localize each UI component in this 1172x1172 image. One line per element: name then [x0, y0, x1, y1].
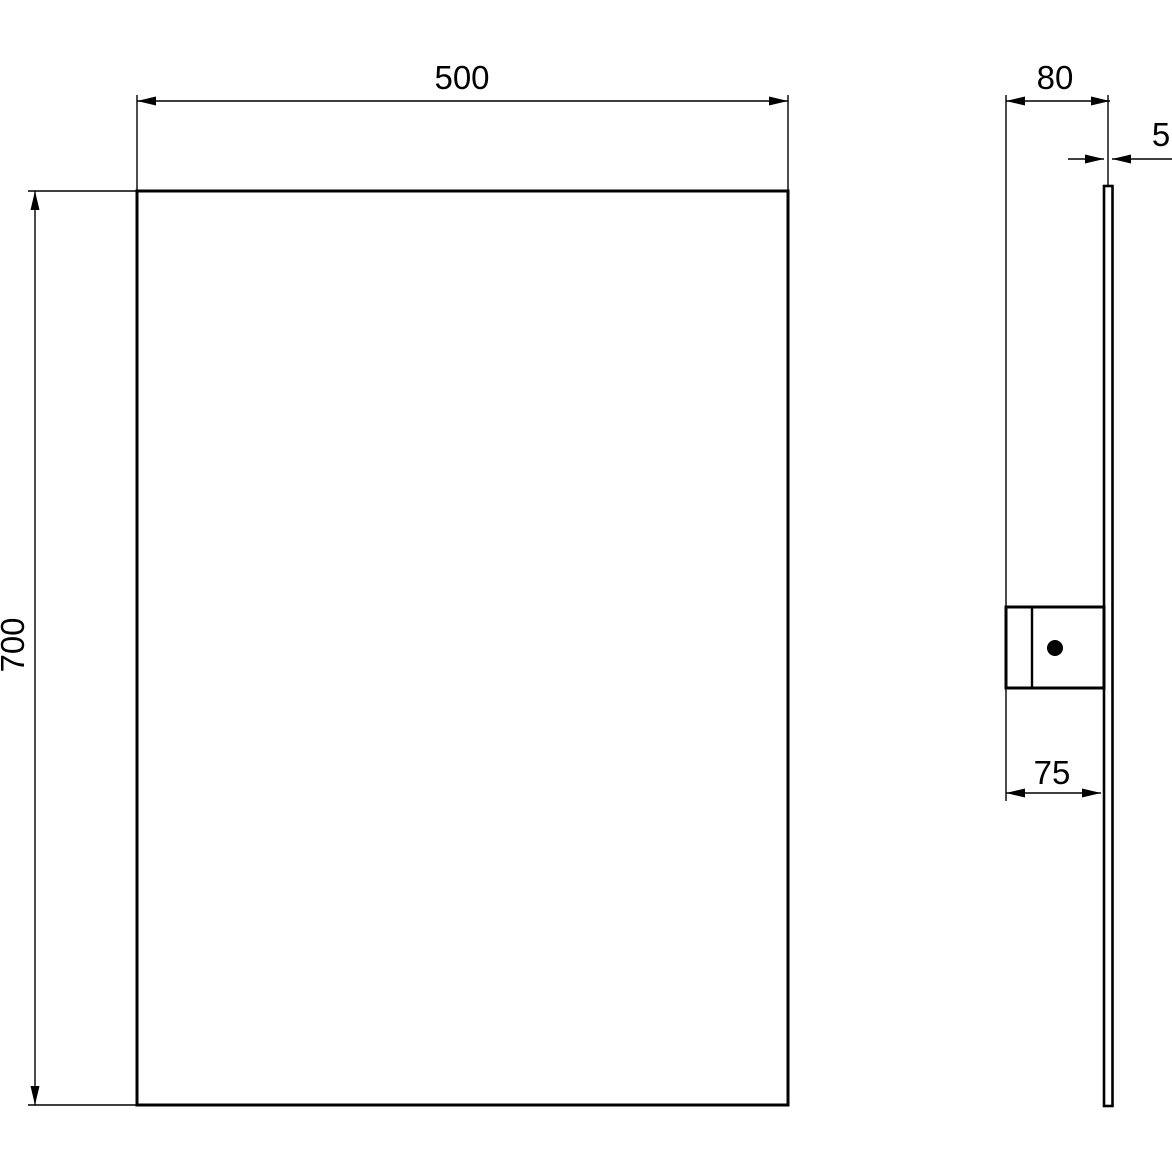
- arrowhead-left-icon: [137, 97, 156, 106]
- width-dimension: 500: [137, 59, 788, 191]
- arrowhead-left-icon: [1006, 789, 1025, 798]
- arrowhead-left-icon: [1006, 97, 1025, 106]
- bracket-dimension-label: 75: [1034, 754, 1071, 791]
- mirror-front-outline: [137, 191, 788, 1105]
- arrowhead-right-icon: [1085, 155, 1104, 164]
- front-view: 500 700: [0, 59, 788, 1105]
- technical-drawing: 500 700 80 5: [0, 0, 1172, 1172]
- height-dimension-label: 700: [0, 617, 31, 672]
- drawing-canvas: 500 700 80 5: [0, 0, 1172, 1172]
- bracket-screw-dot-icon: [1047, 640, 1063, 656]
- width-dimension-label: 500: [434, 59, 489, 96]
- depth-dimension-label: 80: [1037, 59, 1074, 96]
- arrowhead-right-icon: [769, 97, 788, 106]
- arrowhead-down-icon: [31, 1086, 40, 1105]
- bracket-dimension: 75: [1006, 688, 1101, 801]
- arrowhead-right-icon: [1082, 789, 1101, 798]
- height-dimension: 700: [0, 191, 137, 1105]
- thickness-dimension-label: 5: [1152, 116, 1170, 153]
- mounting-bracket: [1006, 607, 1104, 688]
- arrowhead-right-icon: [1091, 97, 1110, 106]
- thickness-dimension: 5: [1068, 116, 1172, 164]
- depth-dimension: 80: [1006, 59, 1110, 607]
- arrowhead-up-icon: [31, 191, 40, 210]
- side-view: 80 5 75: [1006, 59, 1172, 1106]
- arrowhead-left-icon: [1112, 155, 1131, 164]
